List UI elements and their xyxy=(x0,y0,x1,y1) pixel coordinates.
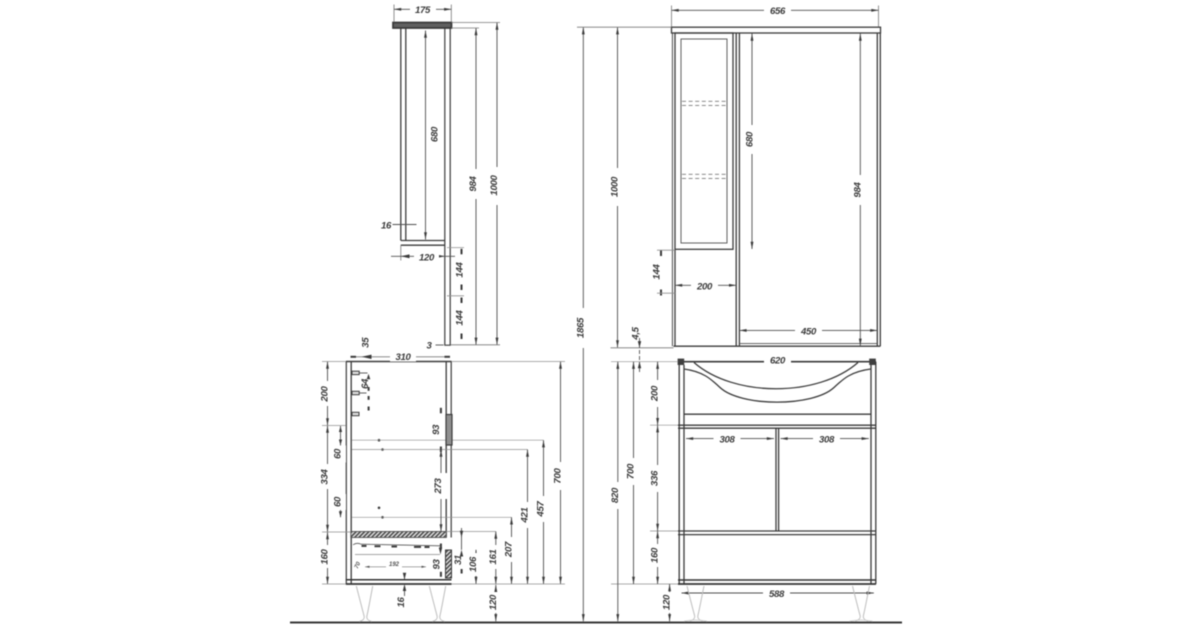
svg-text:700: 700 xyxy=(553,467,564,483)
svg-text:31: 31 xyxy=(453,555,464,565)
svg-text:144: 144 xyxy=(455,261,466,277)
svg-text:192: 192 xyxy=(389,562,400,568)
svg-text:450: 450 xyxy=(800,326,817,337)
svg-text:35: 35 xyxy=(361,337,372,348)
svg-text:334: 334 xyxy=(320,468,331,484)
svg-text:984: 984 xyxy=(468,175,479,191)
svg-text:620: 620 xyxy=(770,356,786,367)
svg-text:16: 16 xyxy=(396,597,407,608)
svg-text:680: 680 xyxy=(430,126,441,142)
svg-text:308: 308 xyxy=(819,435,835,446)
svg-text:60: 60 xyxy=(333,496,344,507)
svg-text:1000: 1000 xyxy=(489,174,500,195)
svg-text:160: 160 xyxy=(320,548,331,564)
svg-text:120: 120 xyxy=(662,594,673,610)
svg-text:16: 16 xyxy=(381,221,392,232)
svg-text:144: 144 xyxy=(652,263,663,279)
svg-text:207: 207 xyxy=(504,541,515,558)
svg-text:1000: 1000 xyxy=(610,176,621,197)
svg-text:120: 120 xyxy=(488,594,499,610)
svg-text:160: 160 xyxy=(650,547,661,563)
svg-text:60: 60 xyxy=(333,448,344,459)
svg-text:70: 70 xyxy=(354,561,363,570)
svg-text:120: 120 xyxy=(419,252,435,263)
svg-text:200: 200 xyxy=(320,385,331,402)
svg-text:161: 161 xyxy=(488,549,499,564)
svg-text:457: 457 xyxy=(536,500,547,517)
svg-text:175: 175 xyxy=(415,5,431,16)
svg-text:200: 200 xyxy=(696,281,713,292)
svg-text:93: 93 xyxy=(432,559,443,570)
svg-text:984: 984 xyxy=(852,181,863,197)
svg-text:820: 820 xyxy=(610,487,621,503)
svg-text:336: 336 xyxy=(650,470,661,486)
svg-text:421: 421 xyxy=(520,507,531,523)
svg-text:308: 308 xyxy=(719,435,735,446)
svg-text:106: 106 xyxy=(468,556,479,572)
svg-text:200: 200 xyxy=(650,385,661,402)
svg-text:3: 3 xyxy=(426,341,432,352)
svg-text:680: 680 xyxy=(745,131,756,147)
svg-text:93: 93 xyxy=(431,424,442,435)
svg-text:4,5: 4,5 xyxy=(631,326,642,340)
svg-text:310: 310 xyxy=(395,352,411,363)
svg-text:700: 700 xyxy=(626,463,637,479)
svg-text:588: 588 xyxy=(769,589,785,600)
svg-text:273: 273 xyxy=(433,477,444,494)
svg-text:1865: 1865 xyxy=(575,317,586,338)
svg-text:144: 144 xyxy=(455,309,466,325)
svg-text:656: 656 xyxy=(770,6,786,17)
